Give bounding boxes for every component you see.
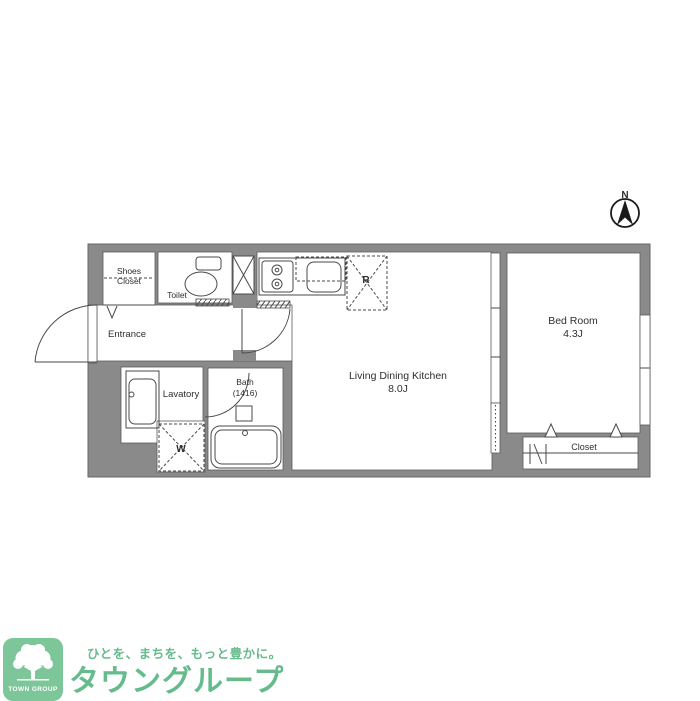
toilet-door-icon xyxy=(196,299,229,306)
partition-window xyxy=(491,253,500,403)
hall-slide-door-icon xyxy=(257,301,290,308)
bedroom-size-label: 4.3J xyxy=(563,328,583,340)
town-group-logo: TOWN GROUP xyxy=(3,638,63,701)
bath-label: Bath xyxy=(236,377,254,387)
closet-label: Closet xyxy=(571,442,597,452)
ldk-label: Living Dining Kitchen xyxy=(349,370,447,382)
lavatory-label: Lavatory xyxy=(163,389,200,400)
floorplan-image: N xyxy=(0,0,700,701)
fridge-label: R xyxy=(362,275,370,286)
town-group-logo-text: TOWN GROUP xyxy=(8,686,58,693)
entrance-label: Entrance xyxy=(108,329,146,340)
pipe-shaft-icon xyxy=(233,256,254,294)
washer-label: W xyxy=(176,444,186,455)
floorplan-page: N xyxy=(0,0,700,701)
ldk-size-label: 8.0J xyxy=(388,383,408,395)
floor-bedroom xyxy=(507,253,640,433)
tree-icon: TOWN GROUP xyxy=(3,638,63,701)
shoes-closet-label: Shoes xyxy=(117,266,141,276)
bedroom-window xyxy=(640,315,650,425)
entrance-door-opening xyxy=(88,305,97,363)
bath-size-label: (1416) xyxy=(233,388,258,398)
shoes-closet-label: Closet xyxy=(117,276,142,286)
brand-name: タウングループ xyxy=(69,656,284,700)
toilet-label: Toilet xyxy=(167,290,187,300)
wall-stub-upper xyxy=(233,295,257,308)
north-arrow: N xyxy=(611,190,639,227)
bedroom-label: Bed Room xyxy=(548,315,598,327)
